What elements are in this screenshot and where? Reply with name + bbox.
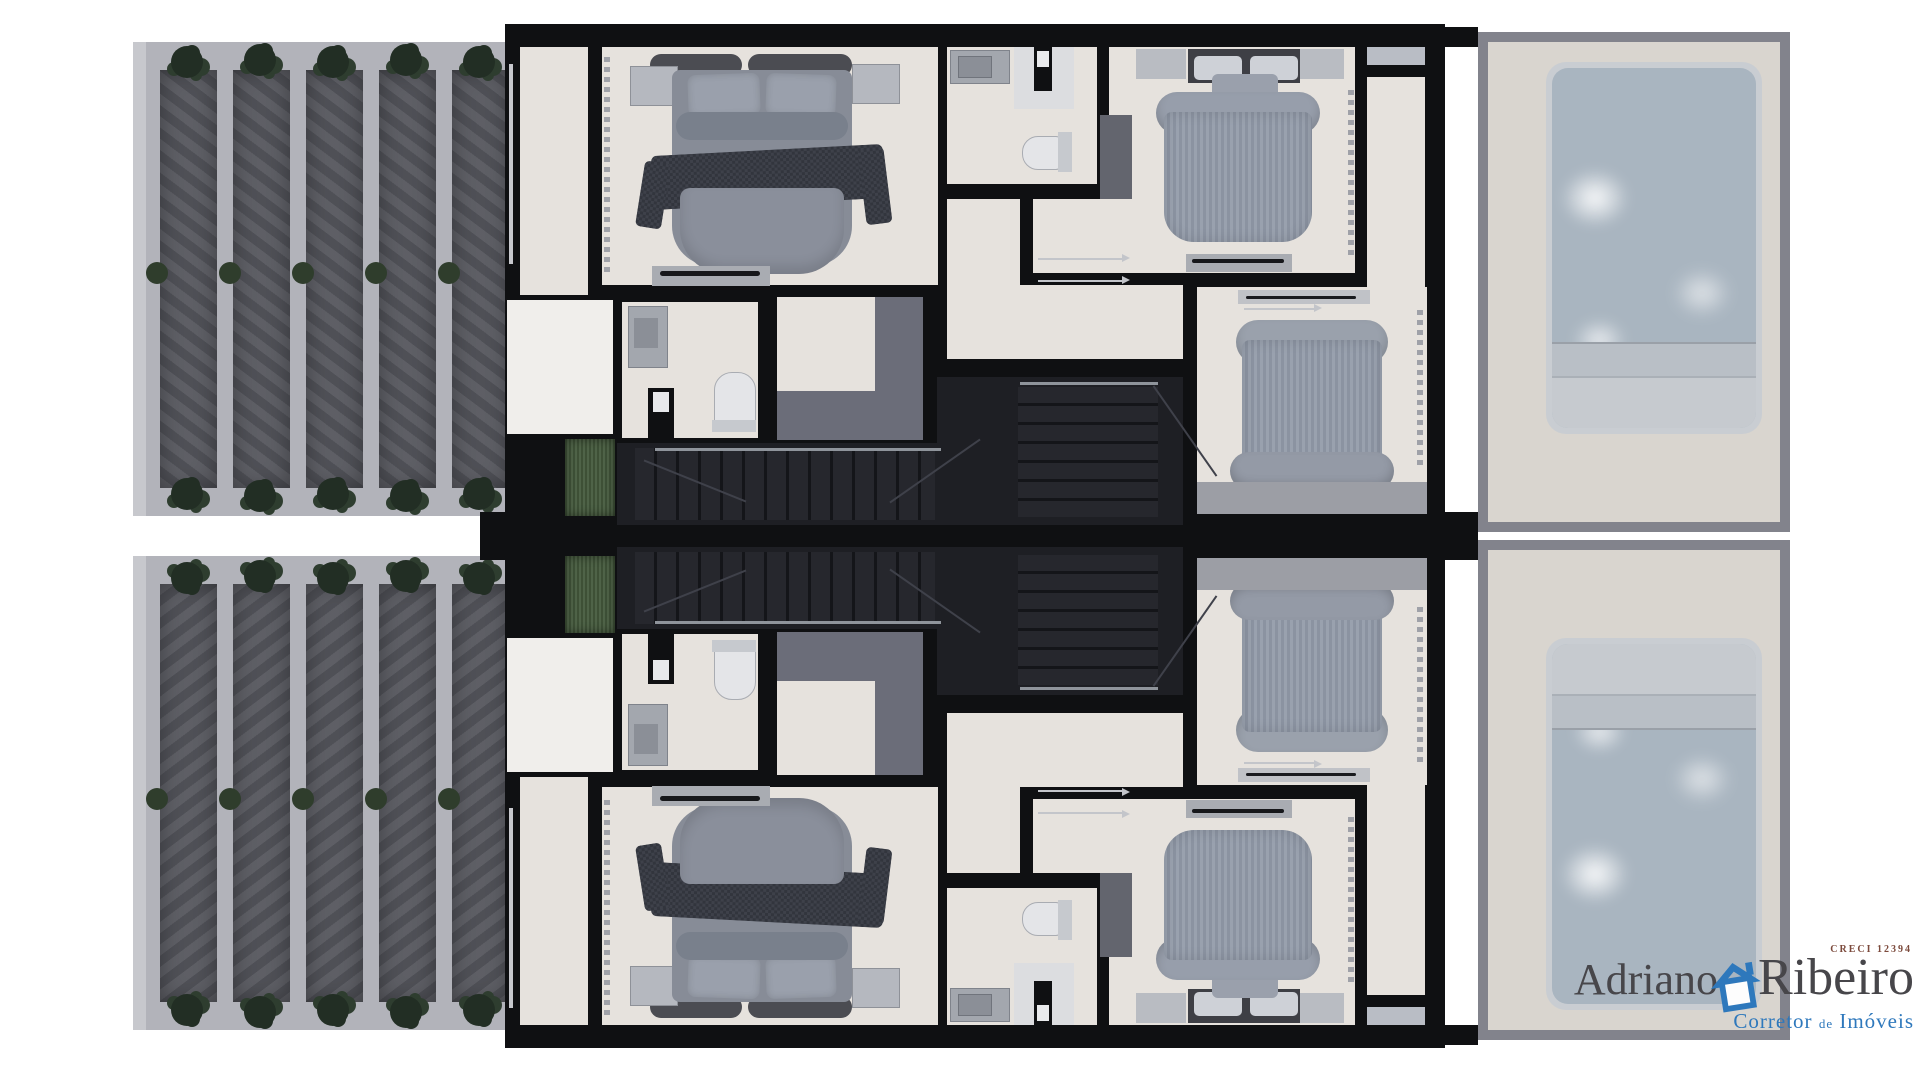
stair-treads xyxy=(635,448,935,520)
master-window xyxy=(604,57,610,275)
garden-panel xyxy=(306,70,363,488)
hallway-lower xyxy=(947,713,1183,787)
brand-tagline: Corretor de Imóveis xyxy=(1566,1009,1914,1034)
side-strip xyxy=(1367,77,1425,290)
closet-floor xyxy=(777,681,875,775)
pillow xyxy=(765,955,836,999)
toilet xyxy=(714,644,756,700)
tree-icon xyxy=(244,44,276,76)
stair-handrail xyxy=(655,621,941,624)
console-line xyxy=(1192,259,1284,263)
tv-cabinet xyxy=(1100,873,1132,957)
wall-stub-deck xyxy=(1445,1025,1478,1045)
sliding-door-line xyxy=(1038,258,1122,260)
sliding-door-arrow xyxy=(1122,810,1130,818)
shower-glass xyxy=(1037,51,1049,67)
powder-basin xyxy=(634,724,658,754)
swimming-pool xyxy=(1552,68,1756,428)
washbasin xyxy=(958,56,992,78)
dresser xyxy=(652,266,770,286)
tree-icon xyxy=(390,44,422,76)
desk-line xyxy=(1246,773,1356,776)
tree-icon xyxy=(463,562,495,594)
bush-icon xyxy=(438,262,460,284)
bedroom2-window xyxy=(1348,90,1354,258)
tree-icon xyxy=(317,46,349,78)
tree-icon xyxy=(244,480,276,512)
tree-icon xyxy=(317,562,349,594)
brand-first-name: Adriano xyxy=(1574,960,1718,1000)
garden-panel xyxy=(379,70,436,488)
brand-name-row: Adriano Ribeiro xyxy=(1566,955,1914,1007)
tree-icon xyxy=(463,478,495,510)
pool-bench xyxy=(1552,694,1756,730)
bush-icon xyxy=(438,788,460,810)
console-line xyxy=(1192,809,1284,813)
tagline-word: de xyxy=(1819,1016,1833,1031)
wardrobe xyxy=(1298,993,1344,1023)
wall-stub-deck xyxy=(1445,27,1478,47)
toilet xyxy=(1022,902,1062,936)
powder-niche-inner xyxy=(653,660,669,680)
powder-niche-inner xyxy=(653,392,669,412)
single-bed xyxy=(1242,606,1382,732)
tv-cabinet xyxy=(1100,115,1132,199)
duvet-lower xyxy=(680,798,844,884)
toilet-tank xyxy=(712,420,756,432)
shower-glass xyxy=(1037,1005,1049,1021)
pool-ledge xyxy=(1552,644,1756,696)
bedroom3-window xyxy=(1417,310,1423,468)
nightstand xyxy=(852,64,900,104)
tree-icon xyxy=(317,994,349,1026)
tree-icon xyxy=(317,478,349,510)
sliding-door-arrow xyxy=(1314,304,1322,312)
tree-icon xyxy=(390,480,422,512)
toilet-tank xyxy=(712,640,756,652)
garden-panel xyxy=(233,584,290,1002)
garden-panel xyxy=(233,70,290,488)
tagline-word: Imóveis xyxy=(1839,1009,1914,1033)
duvet-fold xyxy=(676,112,848,140)
sliding-door-line xyxy=(1244,762,1314,764)
washbasin xyxy=(958,994,992,1016)
bush-icon xyxy=(365,262,387,284)
bush-icon xyxy=(292,788,314,810)
garden-panel xyxy=(160,70,217,488)
toilet-tank xyxy=(1058,132,1072,172)
garden-edge-strip xyxy=(133,42,146,516)
bedroom3-band xyxy=(1197,558,1427,590)
single-duvet xyxy=(1164,112,1312,242)
sliding-door-line xyxy=(1038,812,1122,814)
sliding-door-arrow xyxy=(1122,276,1130,284)
stair-treads-upper xyxy=(1018,387,1158,517)
side-strip xyxy=(1367,782,1425,995)
balcony xyxy=(520,777,588,1025)
duvet-lower xyxy=(680,188,844,274)
water-highlight xyxy=(1672,268,1732,318)
bush-icon xyxy=(219,788,241,810)
stair-handrail xyxy=(1020,687,1158,690)
desk-line xyxy=(1246,296,1356,299)
wall-stub-garden xyxy=(480,512,520,536)
water-highlight xyxy=(1560,168,1630,228)
side-strip-ledge xyxy=(1367,47,1425,65)
closet-floor xyxy=(777,297,875,391)
garden-panel xyxy=(452,584,509,1002)
bush-icon xyxy=(219,262,241,284)
stair-treads-upper xyxy=(1018,555,1158,685)
sliding-door-line xyxy=(1244,308,1314,310)
stair-handrail xyxy=(655,448,941,451)
stair-handrail xyxy=(1020,382,1158,385)
pillow xyxy=(765,73,836,117)
brand-logo: CRECI 12394 Adriano Ribeiro Corretor de … xyxy=(1566,944,1914,1034)
bedroom3-window xyxy=(1417,604,1423,762)
side-strip-ledge xyxy=(1367,1007,1425,1025)
garden-panel xyxy=(306,584,363,1002)
wall-stub-deck xyxy=(1445,512,1478,536)
hallway-lower xyxy=(947,285,1183,359)
balcony xyxy=(520,47,588,295)
tree-icon xyxy=(390,996,422,1028)
water-highlight xyxy=(1672,754,1732,804)
floor-plan-canvas: CRECI 12394 Adriano Ribeiro Corretor de … xyxy=(0,0,1920,1080)
tree-icon xyxy=(171,562,203,594)
bedroom3-band xyxy=(1197,482,1427,514)
bush-icon xyxy=(292,262,314,284)
master-window xyxy=(604,797,610,1015)
water-highlight xyxy=(1560,844,1630,904)
bush-icon xyxy=(365,788,387,810)
wardrobe xyxy=(1136,993,1186,1023)
tv-console-line xyxy=(660,271,760,276)
stair-treads xyxy=(635,552,935,624)
planter-grass xyxy=(565,556,615,633)
sliding-door-arrow xyxy=(1314,760,1322,768)
bush-icon xyxy=(146,788,168,810)
pool-bench xyxy=(1552,342,1756,378)
wardrobe xyxy=(1298,49,1344,79)
pillow xyxy=(687,73,760,117)
nightstand xyxy=(630,966,678,1006)
single-bed xyxy=(1242,340,1382,466)
garden-panel xyxy=(160,584,217,1002)
nightstand xyxy=(852,968,900,1008)
nightstand xyxy=(630,66,678,106)
tree-icon xyxy=(244,996,276,1028)
powder-basin xyxy=(634,318,658,348)
tv-console-line xyxy=(660,796,760,801)
balcony-window xyxy=(509,64,513,264)
tree-icon xyxy=(171,994,203,1026)
balcony-window xyxy=(509,808,513,1008)
tree-icon xyxy=(463,46,495,78)
sliding-door-line xyxy=(1038,280,1122,282)
planter-grass xyxy=(565,439,615,516)
pillow xyxy=(687,955,760,999)
entry-porch xyxy=(507,638,613,772)
tree-icon xyxy=(463,994,495,1026)
half-top xyxy=(0,0,1920,536)
tree-icon xyxy=(171,478,203,510)
garden-panel xyxy=(452,70,509,488)
bedroom2-window xyxy=(1348,814,1354,982)
sliding-door-arrow xyxy=(1122,254,1130,262)
wall-stub-deck xyxy=(1445,536,1478,560)
console xyxy=(1186,254,1292,272)
garden-edge-strip xyxy=(133,556,146,1030)
tree-icon xyxy=(244,560,276,592)
entry-porch xyxy=(507,300,613,434)
sliding-door-arrow xyxy=(1122,788,1130,796)
wardrobe xyxy=(1136,49,1186,79)
tagline-word: Corretor xyxy=(1733,1009,1812,1033)
toilet-tank xyxy=(1058,900,1072,940)
toilet xyxy=(1022,136,1062,170)
sliding-door-line xyxy=(1038,790,1122,792)
bush-icon xyxy=(146,262,168,284)
tree-icon xyxy=(171,46,203,78)
duvet-fold xyxy=(676,932,848,960)
brand-last-name: Ribeiro xyxy=(1758,955,1914,1002)
single-duvet xyxy=(1164,830,1312,960)
garden-panel xyxy=(379,584,436,1002)
tree-icon xyxy=(390,560,422,592)
pool-ledge xyxy=(1552,376,1756,428)
wall-stub-garden xyxy=(480,536,520,560)
